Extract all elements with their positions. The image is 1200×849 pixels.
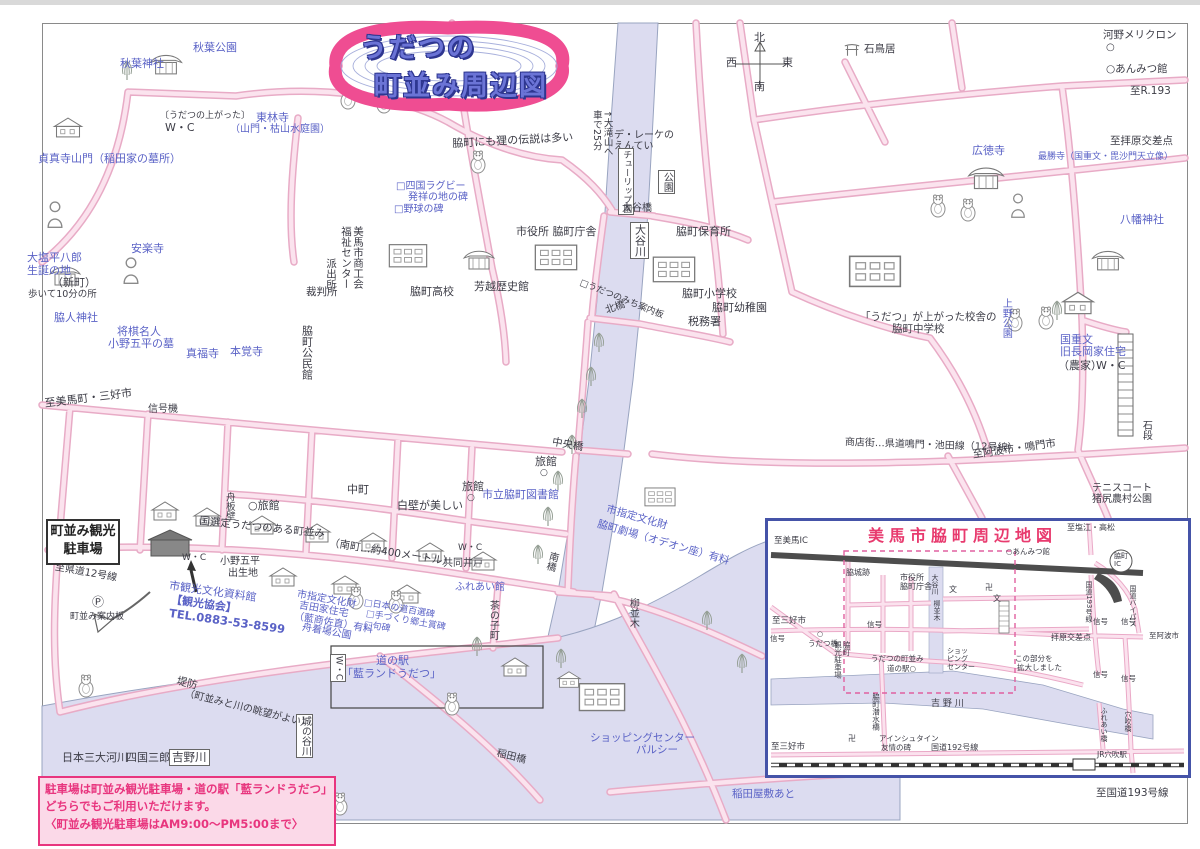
map-label: □四国ラグビー [396,181,465,192]
map-label: ○あんみつ館 [1006,548,1050,557]
map-label: 至塩江・高松 [1067,523,1115,532]
map-label: ○ [1106,42,1115,53]
map-label: 脇町保育所 [676,226,731,239]
map-label: 吉 野 川 [931,699,964,709]
map-label: 上野公園 [1000,298,1011,338]
map-label: （町並みと川の眺望がよい） [183,688,311,730]
map-label: 市役所 脇町庁舎 [516,226,597,239]
map-label: 国選定うだつのある町並み [199,516,326,541]
map-label: テニスコート [1092,483,1152,494]
map-label: 派出所 [324,258,336,290]
map-label: 至三好市 [772,617,806,627]
parking-note-box: 駐車場は町並み観光駐車場・道の駅「藍ランドうだつ」 どちらでもご利用いただけます… [38,776,336,846]
map-label: ふれあい館 [455,582,505,593]
map-label: 至国道193号線 [1096,788,1169,800]
map-label: 信号 [1121,618,1136,627]
map-label: 脇城跡 [846,568,870,577]
map-label: 信号機 [148,404,178,415]
map-label: 至R.193 [1130,86,1171,98]
map-label: ふれあい橋 [1099,707,1107,742]
map-label: 至阿波市 [1149,632,1179,641]
map-label: W・C [165,122,195,135]
map-label: □野球の碑 [394,204,443,215]
map-label: ○旅館 [248,500,280,513]
map-label: 東林寺 [256,112,289,125]
map-label: 旅館 [535,456,557,469]
inset-station [1073,759,1095,770]
map-label: 道の駅○ [887,665,916,674]
map-label: 石段 [1140,420,1151,440]
map-label: 中央橋 [551,437,584,454]
map-title-line2: 町並み周辺図 [374,64,548,103]
map-label: 歩いて10分の所 [28,290,97,301]
map-label: 北 [754,32,765,45]
map-label: （南町…約400メートル） [328,538,453,569]
map-label: 旧長岡家住宅 [1060,346,1126,359]
map-label: 国道193号線 [1084,581,1092,622]
map-label: 市立脇町図書館 [482,489,559,502]
map-label: 脇町潜水橋 [871,693,880,731]
map-label: W・C [458,543,482,553]
map-label: 広徳寺 [972,145,1005,158]
map-label: ↑大滝山へ 車で25分 [590,110,612,156]
map-label: 至県道12号線 [54,562,118,584]
map-label: ○ [540,468,548,478]
map-label: 脇人神社 [54,312,98,325]
map-label: 拡大しました [1017,664,1062,673]
map-label: 中町 [347,484,369,497]
note-line3: 〈町並み観光駐車場はAM9:00〜PM5:00まで〉 [45,816,329,833]
map-label: 信号 [1093,618,1108,627]
map-label: 小野五平の墓 [108,338,174,351]
map-label: 稲田橋 [495,748,527,766]
map-label: 南 [754,81,765,94]
inset-stairs-icon [999,601,1009,633]
map-label: 国道192号線 [931,743,978,752]
map-label: 舟板壁 [223,492,234,521]
map-label: 本覚寺 [230,346,263,359]
map-label: ○ [817,631,823,639]
map-label: ○ [467,493,475,503]
map-label: □うだつのみち案内板 [578,278,665,321]
map-label: 町並み案内板 [70,612,124,622]
map-label: 卍 [848,734,856,743]
map-label: 茶の子町 [487,600,498,640]
map-label: 出生地 [228,568,258,579]
map-label: 信号 [1093,671,1108,680]
map-label: 卍 [985,583,993,592]
map-label: 大塩平八郎 [27,252,82,265]
map-label: 穴吹橋 [1123,711,1131,732]
map-label: 至美馬IC [774,537,808,547]
map-label: 貞真寺山門（稲田家の墓所） [38,153,181,166]
note-line1: 駐車場は町並み観光駐車場・道の駅「藍ランドうだつ」 [45,781,329,798]
map-label: 文 [949,585,957,594]
map-label: 信号 [1121,675,1136,684]
map-label: （山門・枯山水庭園） [230,124,330,135]
map-label: 「藍ランドうだつ」 [342,668,441,681]
map-label: 白壁が美しい [397,500,463,513]
map-label: 旅館 [462,481,484,494]
map-label: 柳並木 [627,598,638,628]
map-label: 芳越歴史館 [474,281,529,294]
map-label: 大谷川 [930,574,938,595]
map-label: 猪尻農村公園 [1092,494,1152,505]
map-label: ○あんみつ館 [1106,64,1168,76]
map-label: 税務署 [688,316,721,329]
map-label: 四国三郎 [126,752,170,765]
map-label: 脇町小学校 [682,288,737,301]
map-label: 八幡神社 [1120,214,1164,227]
map-label: 南橋 [543,550,559,572]
map-label: ショッ ピング センター [947,648,975,672]
map-label: JR穴吹駅 [1097,751,1127,760]
map-label: 石鳥居 [864,44,896,56]
map-label: 至三好市 [771,743,805,753]
map-label: 日本三大河川 [62,752,128,765]
map-label: 安楽寺 [131,243,164,256]
inset-railway [771,759,1184,770]
map-label: 公園 [658,170,675,194]
inset-map-title: 美馬市脇町周辺地図 [868,522,1057,546]
parking-lot-box: 町並み観光駐車場 [46,519,120,565]
map-label: 秋葉神社 [120,58,164,71]
map-title-line1: うだつの [360,26,476,65]
map-label: 稲田屋敷あと [732,789,795,801]
map-label: 友情の碑 [881,744,911,753]
map-label: 裁判所 [306,287,338,299]
map-label: 信号 [867,621,882,630]
map-label: 河野メリクロン [1103,30,1177,42]
note-line2: どちらでもご利用いただけます。 [45,798,329,815]
map-label: 美馬市商工会 福祉センター [339,226,363,289]
map-label: 至美馬町・三好市 [44,387,133,410]
map-label: Ⓟ [92,596,104,610]
parking-line1: 町並み観光 [50,524,115,539]
parking-line2: 駐車場 [63,542,102,557]
map-label: 至拝原交差点 [1110,136,1173,148]
map-label: 脇町にも狸の伝説は多い [452,132,573,151]
title-badge: うだつの 町並み周辺図 [298,20,608,115]
map-label: 東 [782,57,793,70]
map-label: W・C [1096,360,1126,373]
map-label: 脇町高校 [410,286,454,299]
map-label: 吉野川 [169,749,210,766]
map-label: 〔うだつの上がった〕 [160,111,250,121]
map-label: 秋葉公園 [193,42,237,55]
map-label: 大谷川 [630,222,649,259]
map-label: 脇町 IC [1114,553,1128,569]
map-label: 大谷橋 [622,203,652,214]
map-label: 脇町中学校 [892,324,945,336]
map-label: 市役所 脇町庁舎 [900,573,932,591]
map-label: 道の駅 [376,655,409,668]
map-label: 脇町公民館 [300,325,313,380]
inset-map: 美馬市脇町周辺地図 至美馬IC脇城跡市役所 脇町庁舎大谷川文柳並木至三好市信号信… [765,518,1191,778]
map-label: パルシー [636,745,678,757]
map-label: 脇町幼稚園 [712,302,767,315]
map-label: 西 [726,57,737,70]
map-label: 脇町 観光駐車場 [833,641,850,679]
map-label: （新町） [52,277,96,290]
map-label: W・C [182,553,206,563]
map-label: 文 [993,594,1001,603]
map-label: うだつの町並み [871,655,924,664]
map-label: 柳並木 [932,600,940,621]
tourist-map-page: 秋葉公園秋葉神社〔うだつの上がった〕W・C東林寺（山門・枯山水庭園）貞真寺山門（… [0,0,1200,849]
map-label: 最勝寺（国重文・毘沙門天立像） [1038,152,1173,162]
map-label: 信号 [770,635,785,644]
map-label: 発祥の地の碑 [408,192,468,203]
map-label: 拝原交差点 [1051,633,1091,642]
map-label: 真福寺 [186,348,219,361]
inset-highway [771,555,1143,573]
map-label: 小野五平 [220,556,260,567]
